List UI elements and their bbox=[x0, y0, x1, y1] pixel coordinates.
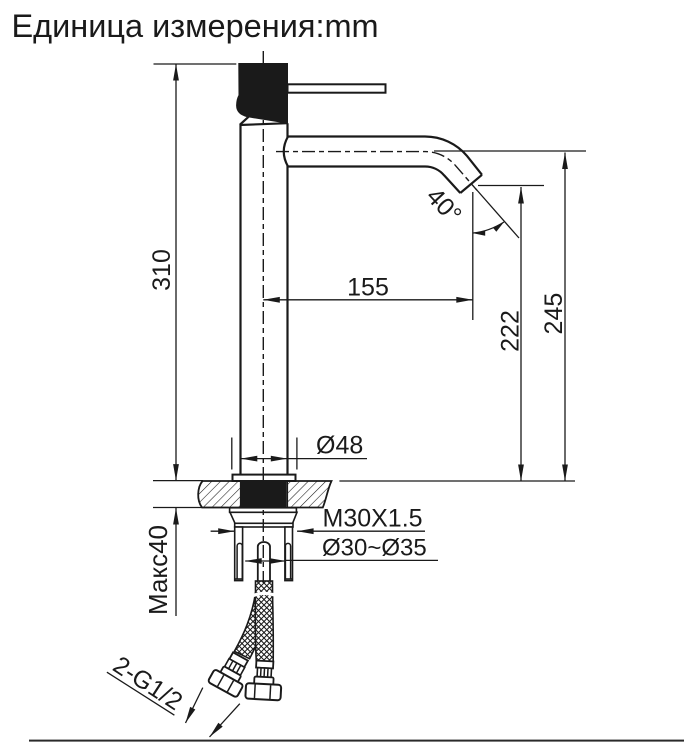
svg-text:Единица измерения:mm: Единица измерения:mm bbox=[12, 8, 379, 44]
svg-text:Макс40: Макс40 bbox=[143, 525, 173, 615]
svg-text:Ø48: Ø48 bbox=[316, 432, 363, 460]
svg-text:Ø30~Ø35: Ø30~Ø35 bbox=[322, 535, 427, 562]
svg-text:155: 155 bbox=[347, 274, 389, 302]
svg-text:222: 222 bbox=[497, 310, 525, 352]
svg-text:310: 310 bbox=[148, 249, 176, 291]
svg-text:M30X1.5: M30X1.5 bbox=[323, 505, 423, 533]
svg-text:245: 245 bbox=[540, 293, 568, 335]
